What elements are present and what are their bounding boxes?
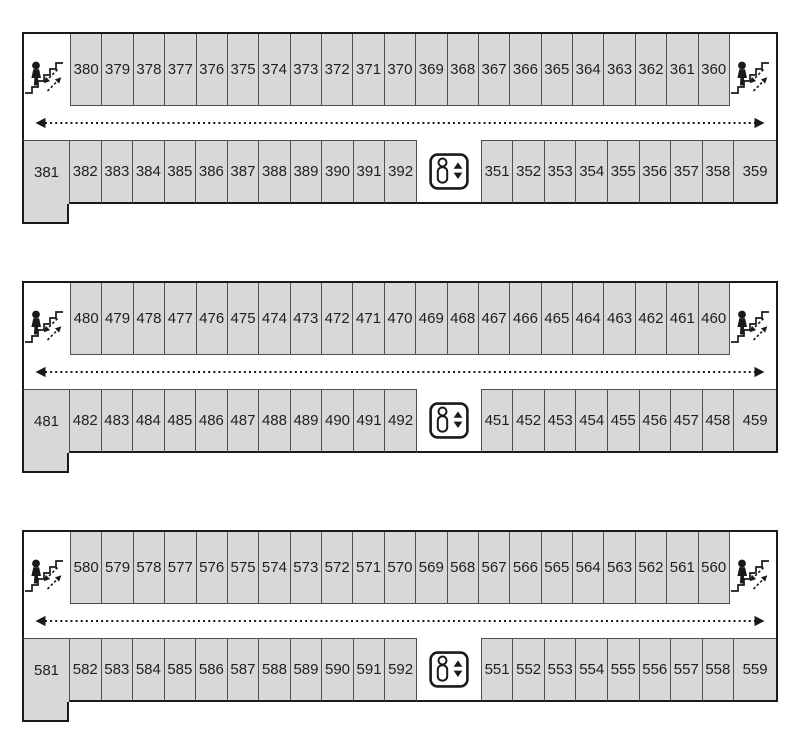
room-372[interactable]: 372 [321, 34, 352, 106]
room-558[interactable]: 558 [702, 638, 734, 702]
room-587[interactable]: 587 [227, 638, 259, 702]
room-572[interactable]: 572 [321, 532, 352, 604]
room-575[interactable]: 575 [227, 532, 258, 604]
room-479[interactable]: 479 [101, 283, 132, 355]
room-374[interactable]: 374 [258, 34, 289, 106]
room-489[interactable]: 489 [290, 389, 322, 453]
room-570[interactable]: 570 [384, 532, 415, 604]
room-581[interactable]: 581 [22, 638, 69, 702]
stairs-icon [730, 305, 776, 347]
room-370[interactable]: 370 [384, 34, 415, 106]
room-365[interactable]: 365 [541, 34, 572, 106]
room-582[interactable]: 582 [69, 638, 101, 702]
room-578[interactable]: 578 [133, 532, 164, 604]
room-354[interactable]: 354 [575, 140, 607, 204]
room-460[interactable]: 460 [698, 283, 730, 355]
room-382[interactable]: 382 [69, 140, 101, 204]
room-554[interactable]: 554 [575, 638, 607, 702]
room-383[interactable]: 383 [101, 140, 133, 204]
dotted-double-arrow-icon [34, 615, 766, 627]
room-455[interactable]: 455 [607, 389, 639, 453]
upper-room-row: 4804794784774764754744734724714704694684… [22, 281, 778, 355]
stairwell-right [730, 283, 776, 355]
room-556[interactable]: 556 [639, 638, 671, 702]
room-486[interactable]: 486 [195, 389, 227, 453]
room-384[interactable]: 384 [132, 140, 164, 204]
room-579[interactable]: 579 [101, 532, 132, 604]
room-586[interactable]: 586 [195, 638, 227, 702]
room-469[interactable]: 469 [415, 283, 446, 355]
elevator-lobby [416, 389, 481, 453]
room-464[interactable]: 464 [572, 283, 603, 355]
room-491[interactable]: 491 [353, 389, 385, 453]
room-369[interactable]: 369 [415, 34, 446, 106]
room-551[interactable]: 551 [481, 638, 513, 702]
room-485[interactable]: 485 [164, 389, 196, 453]
room-477[interactable]: 477 [164, 283, 195, 355]
room-extension [22, 453, 69, 473]
stairs-icon [730, 554, 776, 596]
room-356[interactable]: 356 [639, 140, 671, 204]
dotted-double-arrow-icon [34, 366, 766, 378]
floor-section-3xx: 3803793783773763753743733723713703693683… [22, 32, 778, 224]
stairwell-left [24, 34, 70, 106]
room-462[interactable]: 462 [635, 283, 666, 355]
room-478[interactable]: 478 [133, 283, 164, 355]
room-375[interactable]: 375 [227, 34, 258, 106]
room-353[interactable]: 353 [544, 140, 576, 204]
room-385[interactable]: 385 [164, 140, 196, 204]
room-388[interactable]: 388 [258, 140, 290, 204]
room-574[interactable]: 574 [258, 532, 289, 604]
floor-section-4xx: 4804794784774764754744734724714704694684… [22, 281, 778, 473]
room-456[interactable]: 456 [639, 389, 671, 453]
room-577[interactable]: 577 [164, 532, 195, 604]
room-468[interactable]: 468 [447, 283, 478, 355]
room-584[interactable]: 584 [132, 638, 164, 702]
stairwell-right [730, 34, 776, 106]
room-471[interactable]: 471 [352, 283, 383, 355]
room-473[interactable]: 473 [290, 283, 321, 355]
stairs-icon [24, 305, 70, 347]
elevator-lobby [416, 140, 481, 204]
room-453[interactable]: 453 [544, 389, 576, 453]
room-458[interactable]: 458 [702, 389, 734, 453]
room-362[interactable]: 362 [635, 34, 666, 106]
room-482[interactable]: 482 [69, 389, 101, 453]
room-564[interactable]: 564 [572, 532, 603, 604]
room-461[interactable]: 461 [666, 283, 697, 355]
room-592[interactable]: 592 [384, 638, 416, 702]
corridor [22, 355, 778, 389]
room-467[interactable]: 467 [478, 283, 509, 355]
room-481[interactable]: 481 [22, 389, 69, 453]
elevator-lobby [416, 638, 481, 702]
room-591[interactable]: 591 [353, 638, 385, 702]
room-451[interactable]: 451 [481, 389, 513, 453]
room-363[interactable]: 363 [603, 34, 634, 106]
room-484[interactable]: 484 [132, 389, 164, 453]
elevator-icon [429, 651, 469, 688]
room-465[interactable]: 465 [541, 283, 572, 355]
room-588[interactable]: 588 [258, 638, 290, 702]
room-576[interactable]: 576 [196, 532, 227, 604]
room-355[interactable]: 355 [607, 140, 639, 204]
room-483[interactable]: 483 [101, 389, 133, 453]
room-378[interactable]: 378 [133, 34, 164, 106]
room-583[interactable]: 583 [101, 638, 133, 702]
room-extension [22, 702, 69, 722]
room-490[interactable]: 490 [321, 389, 353, 453]
room-373[interactable]: 373 [290, 34, 321, 106]
room-475[interactable]: 475 [227, 283, 258, 355]
corridor [22, 604, 778, 638]
room-357[interactable]: 357 [670, 140, 702, 204]
room-571[interactable]: 571 [352, 532, 383, 604]
room-552[interactable]: 552 [512, 638, 544, 702]
elevator-icon [429, 153, 469, 190]
room-470[interactable]: 470 [384, 283, 415, 355]
room-387[interactable]: 387 [227, 140, 259, 204]
room-371[interactable]: 371 [352, 34, 383, 106]
room-476[interactable]: 476 [196, 283, 227, 355]
room-568[interactable]: 568 [447, 532, 478, 604]
room-360[interactable]: 360 [698, 34, 730, 106]
room-361[interactable]: 361 [666, 34, 697, 106]
room-463[interactable]: 463 [603, 283, 634, 355]
room-379[interactable]: 379 [101, 34, 132, 106]
room-487[interactable]: 487 [227, 389, 259, 453]
lower-room-row: 381 382383384385386387388389390391392 35… [22, 140, 778, 204]
floor-section-5xx: 5805795785775765755745735725715705695685… [22, 530, 778, 722]
dotted-double-arrow-icon [34, 117, 766, 129]
room-488[interactable]: 488 [258, 389, 290, 453]
room-561[interactable]: 561 [666, 532, 697, 604]
room-562[interactable]: 562 [635, 532, 666, 604]
stairs-icon [24, 554, 70, 596]
hotel-floor-plans: 3803793783773763753743733723713703693683… [0, 0, 800, 722]
room-352[interactable]: 352 [512, 140, 544, 204]
room-466[interactable]: 466 [509, 283, 540, 355]
room-389[interactable]: 389 [290, 140, 322, 204]
room-553[interactable]: 553 [544, 638, 576, 702]
room-358[interactable]: 358 [702, 140, 734, 204]
room-589[interactable]: 589 [290, 638, 322, 702]
corridor [22, 106, 778, 140]
lower-room-row: 581 582583584585586587588589590591592 55… [22, 638, 778, 702]
room-590[interactable]: 590 [321, 638, 353, 702]
stairwell-left [24, 283, 70, 355]
room-567[interactable]: 567 [478, 532, 509, 604]
room-585[interactable]: 585 [164, 638, 196, 702]
room-extension [22, 204, 69, 224]
room-351[interactable]: 351 [481, 140, 513, 204]
room-392[interactable]: 392 [384, 140, 416, 204]
room-480[interactable]: 480 [70, 283, 101, 355]
room-390[interactable]: 390 [321, 140, 353, 204]
room-580[interactable]: 580 [70, 532, 101, 604]
room-472[interactable]: 472 [321, 283, 352, 355]
room-377[interactable]: 377 [164, 34, 195, 106]
room-474[interactable]: 474 [258, 283, 289, 355]
stairs-icon [730, 56, 776, 98]
room-563[interactable]: 563 [603, 532, 634, 604]
room-368[interactable]: 368 [447, 34, 478, 106]
elevator-icon [429, 402, 469, 439]
room-381[interactable]: 381 [22, 140, 69, 204]
room-565[interactable]: 565 [541, 532, 572, 604]
room-367[interactable]: 367 [478, 34, 509, 106]
stairwell-right [730, 532, 776, 604]
room-452[interactable]: 452 [512, 389, 544, 453]
room-573[interactable]: 573 [290, 532, 321, 604]
room-566[interactable]: 566 [509, 532, 540, 604]
room-364[interactable]: 364 [572, 34, 603, 106]
room-569[interactable]: 569 [415, 532, 446, 604]
room-559[interactable]: 559 [733, 638, 776, 702]
stairs-icon [24, 56, 70, 98]
room-454[interactable]: 454 [575, 389, 607, 453]
room-457[interactable]: 457 [670, 389, 702, 453]
room-359[interactable]: 359 [733, 140, 776, 204]
room-555[interactable]: 555 [607, 638, 639, 702]
stairwell-left [24, 532, 70, 604]
room-557[interactable]: 557 [670, 638, 702, 702]
room-560[interactable]: 560 [698, 532, 730, 604]
room-386[interactable]: 386 [195, 140, 227, 204]
room-391[interactable]: 391 [353, 140, 385, 204]
upper-room-row: 5805795785775765755745735725715705695685… [22, 530, 778, 604]
room-459[interactable]: 459 [733, 389, 776, 453]
room-380[interactable]: 380 [70, 34, 101, 106]
room-376[interactable]: 376 [196, 34, 227, 106]
upper-room-row: 3803793783773763753743733723713703693683… [22, 32, 778, 106]
lower-room-row: 481 482483484485486487488489490491492 45… [22, 389, 778, 453]
room-492[interactable]: 492 [384, 389, 416, 453]
room-366[interactable]: 366 [509, 34, 540, 106]
